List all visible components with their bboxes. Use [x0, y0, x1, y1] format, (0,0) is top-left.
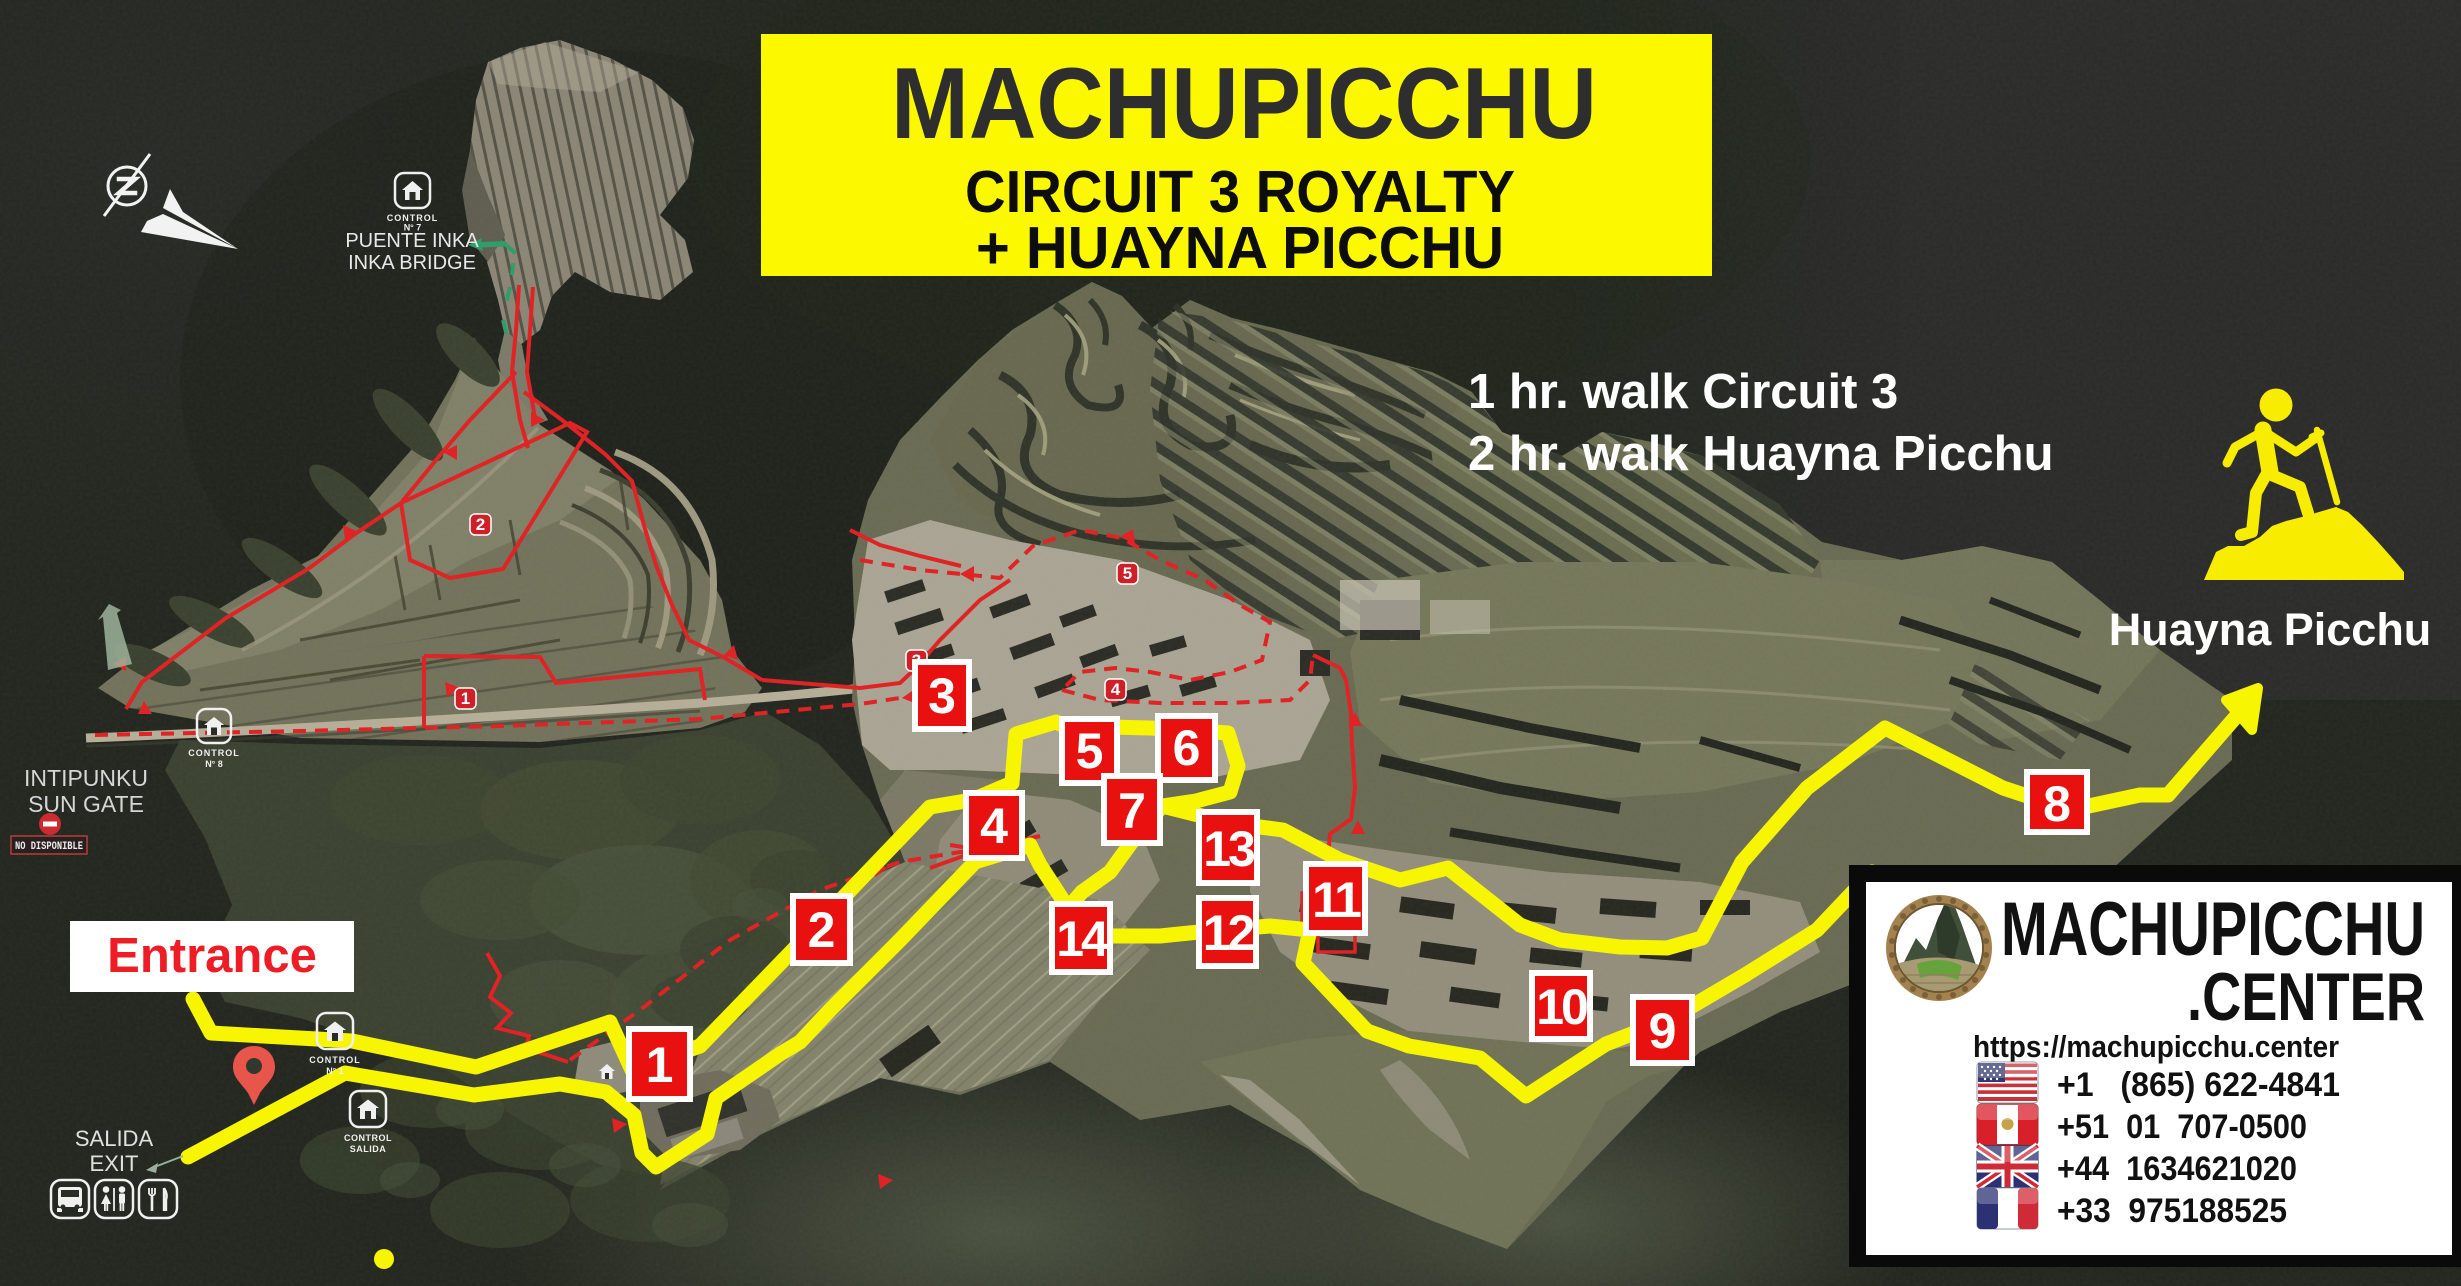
svg-text:2 hr. walk Huayna Picchu: 2 hr. walk Huayna Picchu — [1468, 427, 2054, 481]
svg-text:13: 13 — [1203, 821, 1254, 877]
svg-text:CONTROL: CONTROL — [344, 1133, 392, 1143]
svg-text:CONTROL: CONTROL — [188, 748, 240, 758]
svg-text:1: 1 — [461, 689, 470, 708]
svg-text:7: 7 — [1118, 783, 1146, 839]
svg-text:10: 10 — [1536, 979, 1587, 1035]
svg-text:Entrance: Entrance — [107, 929, 317, 983]
svg-text:5: 5 — [1076, 723, 1104, 779]
svg-text:+51 01 707-0500: +51 01 707-0500 — [2057, 1108, 2307, 1146]
svg-text:2: 2 — [476, 515, 485, 534]
svg-text:SALIDA: SALIDA — [75, 1126, 154, 1151]
svg-text:4: 4 — [1111, 680, 1121, 699]
svg-text:EXIT: EXIT — [90, 1151, 139, 1176]
svg-text:PUENTE INKA: PUENTE INKA — [345, 230, 479, 252]
svg-text:3: 3 — [928, 668, 956, 724]
svg-text:12: 12 — [1203, 905, 1254, 961]
svg-text:14: 14 — [1056, 911, 1109, 967]
svg-text:.CENTER: .CENTER — [2187, 959, 2425, 1035]
svg-text:+33 975188525: +33 975188525 — [2057, 1192, 2287, 1230]
svg-text:N° 8: N° 8 — [205, 759, 223, 769]
svg-text:SUN GATE: SUN GATE — [28, 791, 144, 817]
svg-text:2: 2 — [808, 902, 836, 958]
svg-text:NO DISPONIBLE: NO DISPONIBLE — [15, 841, 83, 853]
svg-text:N° 1: N° 1 — [326, 1066, 344, 1076]
svg-text:SALIDA: SALIDA — [350, 1144, 387, 1154]
svg-text:MACHUPICCHU: MACHUPICCHU — [891, 48, 1597, 160]
svg-text:1 hr. walk Circuit 3: 1 hr. walk Circuit 3 — [1468, 365, 1898, 419]
svg-text:11: 11 — [1312, 872, 1361, 928]
svg-text:CONTROL: CONTROL — [309, 1055, 361, 1065]
svg-text:CONTROL: CONTROL — [387, 213, 439, 223]
svg-text:4: 4 — [980, 798, 1008, 854]
svg-text:https://machupicchu.center: https://machupicchu.center — [1973, 1029, 2339, 1064]
svg-text:5: 5 — [1123, 564, 1132, 583]
svg-text:Huayna Picchu: Huayna Picchu — [2109, 604, 2432, 655]
svg-text:6: 6 — [1173, 720, 1201, 776]
svg-text:INTIPUNKU: INTIPUNKU — [24, 765, 148, 791]
svg-text:8: 8 — [2043, 776, 2071, 832]
svg-text:+1 (865) 622-4841: +1 (865) 622-4841 — [2057, 1066, 2340, 1104]
svg-text:9: 9 — [1649, 1003, 1677, 1059]
svg-text:+ HUAYNA PICCHU: + HUAYNA PICCHU — [976, 215, 1504, 281]
svg-text:INKA BRIDGE: INKA BRIDGE — [348, 252, 476, 274]
svg-text:+44 1634621020: +44 1634621020 — [2057, 1150, 2297, 1188]
svg-text:1: 1 — [646, 1037, 674, 1093]
